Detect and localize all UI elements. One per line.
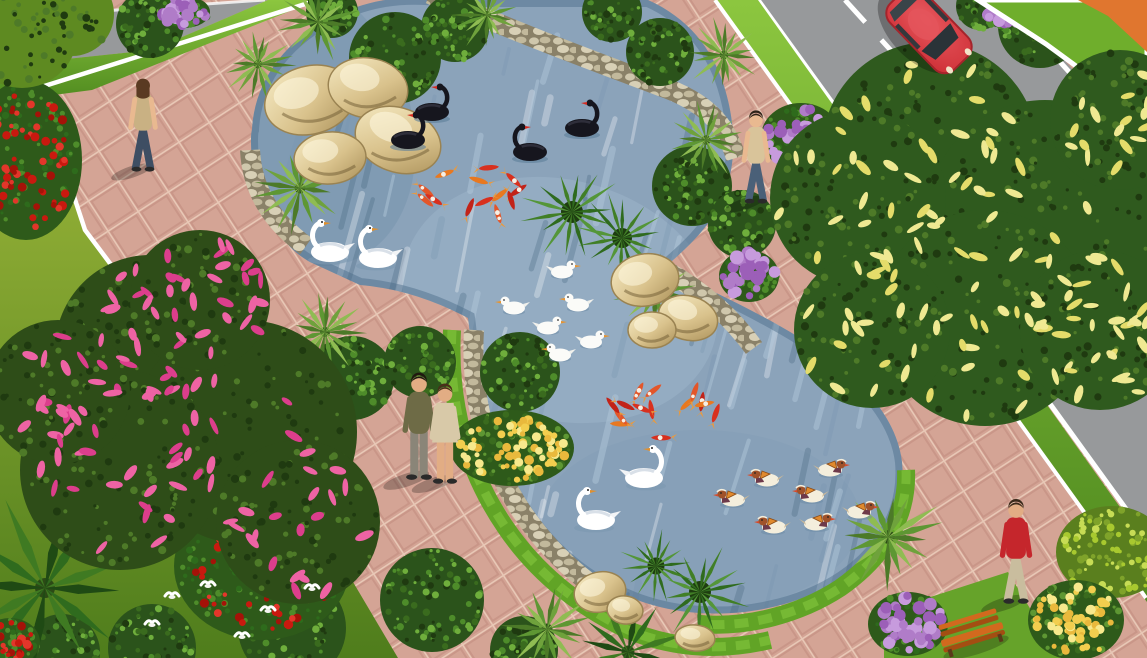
head xyxy=(749,114,763,128)
park-landscape-rendering xyxy=(0,0,1147,658)
park-scene-canvas xyxy=(0,0,1147,658)
head xyxy=(1008,503,1023,518)
shrub xyxy=(480,332,560,412)
head xyxy=(411,376,427,392)
head xyxy=(438,387,453,402)
shrub xyxy=(380,548,484,652)
rose-bush-yellow xyxy=(450,410,574,486)
blossom-cluster xyxy=(1031,300,1046,308)
rose-bush-yellow xyxy=(1028,580,1124,658)
